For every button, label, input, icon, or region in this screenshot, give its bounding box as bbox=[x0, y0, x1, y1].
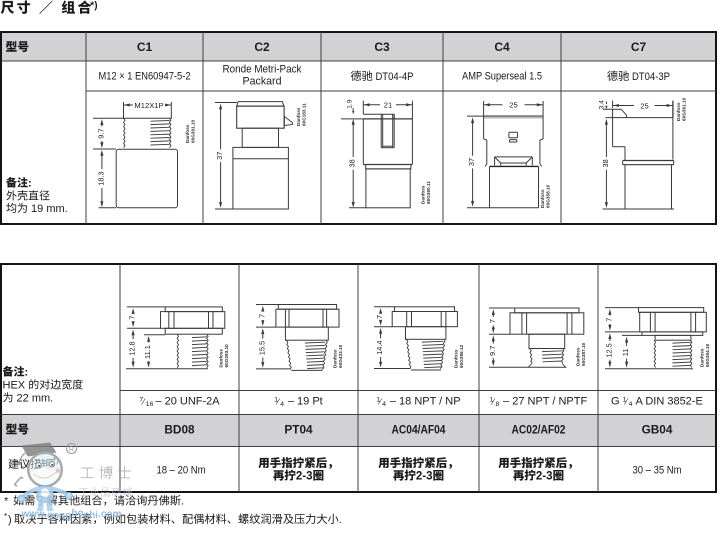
svg-text:60G433.10: 60G433.10 bbox=[338, 344, 343, 368]
svg-text:7: 7 bbox=[375, 315, 384, 319]
svg-text:7: 7 bbox=[488, 319, 497, 323]
svg-text:12.5: 12.5 bbox=[604, 343, 613, 357]
svg-text:Packard: Packard bbox=[243, 76, 282, 88]
svg-text:4: 4 bbox=[280, 401, 284, 408]
svg-text:2-3: 2-3 bbox=[296, 471, 313, 483]
svg-text:AMP Superseal 1.5: AMP Superseal 1.5 bbox=[462, 71, 542, 83]
svg-text:*: * bbox=[4, 512, 7, 521]
svg-text:.: . bbox=[181, 496, 184, 508]
svg-text:*): *) bbox=[90, 1, 97, 12]
svg-text:G: G bbox=[611, 396, 623, 408]
svg-text:Danfoss: Danfoss bbox=[185, 124, 190, 143]
svg-text:3.4: 3.4 bbox=[599, 100, 606, 110]
svg-text:M12 × 1 EN60947-5-2: M12 × 1 EN60947-5-2 bbox=[99, 71, 191, 83]
svg-text:HEX: HEX bbox=[3, 380, 29, 392]
svg-text:38: 38 bbox=[601, 159, 610, 167]
svg-text:*: * bbox=[4, 496, 11, 508]
svg-text:– 18 NPT / NP: – 18 NPT / NP bbox=[387, 396, 461, 408]
svg-text:21: 21 bbox=[384, 101, 392, 110]
svg-text:Danfoss: Danfoss bbox=[676, 102, 681, 121]
svg-text::: : bbox=[28, 178, 32, 190]
svg-text:60G358.10: 60G358.10 bbox=[546, 184, 551, 208]
svg-text:11.1: 11.1 bbox=[143, 345, 152, 359]
svg-text:Danfoss: Danfoss bbox=[700, 348, 705, 367]
svg-text:GB04: GB04 bbox=[642, 423, 673, 437]
svg-text:18.3: 18.3 bbox=[96, 171, 105, 185]
svg-text:– 27 NPT / NPTF: – 27 NPT / NPTF bbox=[500, 396, 587, 408]
svg-text:60G360.11: 60G360.11 bbox=[426, 181, 431, 204]
svg-text:15.5: 15.5 bbox=[257, 341, 266, 355]
svg-text:Danfoss: Danfoss bbox=[333, 349, 338, 368]
svg-text:60G387.10: 60G387.10 bbox=[581, 342, 586, 366]
svg-text:Ronde Metri-Pack: Ronde Metri-Pack bbox=[223, 64, 302, 76]
svg-text:A DIN 3852-E: A DIN 3852-E bbox=[633, 396, 703, 408]
svg-text:C1: C1 bbox=[137, 40, 153, 54]
svg-text:Danfoss: Danfoss bbox=[421, 185, 426, 204]
svg-text:60G394.10: 60G394.10 bbox=[705, 343, 710, 367]
svg-text:7: 7 bbox=[604, 318, 613, 322]
svg-text::: : bbox=[25, 367, 29, 379]
svg-text:9.7: 9.7 bbox=[488, 346, 497, 356]
svg-text:4: 4 bbox=[382, 401, 386, 408]
svg-text:): ) bbox=[8, 514, 15, 526]
svg-text:60G361.10: 60G361.10 bbox=[682, 97, 687, 121]
svg-text:30 – 35 Nm: 30 – 35 Nm bbox=[633, 465, 682, 477]
svg-text:7: 7 bbox=[257, 314, 266, 318]
svg-text:Danfoss: Danfoss bbox=[540, 189, 545, 208]
svg-text:AC02/AF02: AC02/AF02 bbox=[512, 423, 566, 437]
svg-text:Danfoss: Danfoss bbox=[454, 349, 459, 368]
svg-text:12.8: 12.8 bbox=[128, 341, 137, 355]
svg-text:Danfoss: Danfoss bbox=[296, 107, 301, 126]
svg-text:38: 38 bbox=[348, 159, 357, 167]
svg-text:2-3: 2-3 bbox=[416, 471, 433, 483]
svg-text:37: 37 bbox=[467, 158, 476, 166]
svg-text:25: 25 bbox=[509, 101, 517, 110]
svg-text:www.gongboshi.com: www.gongboshi.com bbox=[21, 508, 122, 522]
svg-text:C4: C4 bbox=[494, 40, 510, 54]
svg-text:BD08: BD08 bbox=[164, 423, 195, 437]
svg-text:C3: C3 bbox=[374, 40, 390, 54]
svg-text:60C183.11: 60C183.11 bbox=[302, 103, 307, 126]
svg-text:8: 8 bbox=[496, 401, 500, 408]
svg-text:– 20 UNF-2A: – 20 UNF-2A bbox=[152, 396, 220, 408]
svg-text:DT04-4P: DT04-4P bbox=[373, 71, 414, 83]
svg-text:R: R bbox=[69, 446, 74, 453]
svg-text:60G386.12: 60G386.12 bbox=[459, 344, 464, 368]
svg-text:19 mm.: 19 mm. bbox=[28, 203, 68, 215]
svg-text:4: 4 bbox=[629, 401, 633, 408]
svg-text:C2: C2 bbox=[254, 40, 270, 54]
svg-text:60G393.10: 60G393.10 bbox=[224, 344, 229, 368]
svg-text:.: . bbox=[339, 514, 342, 526]
svg-text:7: 7 bbox=[128, 316, 137, 320]
svg-text:14.4: 14.4 bbox=[375, 341, 384, 355]
svg-text:PT04: PT04 bbox=[284, 423, 313, 437]
svg-text:1.9: 1.9 bbox=[347, 99, 354, 109]
svg-text:2-3: 2-3 bbox=[536, 471, 553, 483]
svg-text:– 19 Pt: – 19 Pt bbox=[285, 396, 323, 408]
svg-text:Danfoss: Danfoss bbox=[576, 347, 581, 366]
svg-text:60G391.10: 60G391.10 bbox=[191, 119, 196, 143]
svg-text:37: 37 bbox=[215, 152, 224, 160]
svg-text:9.7: 9.7 bbox=[96, 129, 105, 139]
svg-text:22 mm.: 22 mm. bbox=[14, 393, 54, 405]
svg-text:18 – 20 Nm: 18 – 20 Nm bbox=[157, 465, 206, 477]
svg-text:AC04/AF04: AC04/AF04 bbox=[392, 423, 446, 437]
svg-text:25: 25 bbox=[640, 101, 648, 110]
svg-text:M12X1P: M12X1P bbox=[134, 101, 163, 110]
svg-text:Danfoss: Danfoss bbox=[219, 349, 224, 368]
svg-text:11: 11 bbox=[621, 349, 630, 357]
svg-text:DT04-3P: DT04-3P bbox=[629, 71, 670, 83]
svg-text:C7: C7 bbox=[631, 40, 647, 54]
